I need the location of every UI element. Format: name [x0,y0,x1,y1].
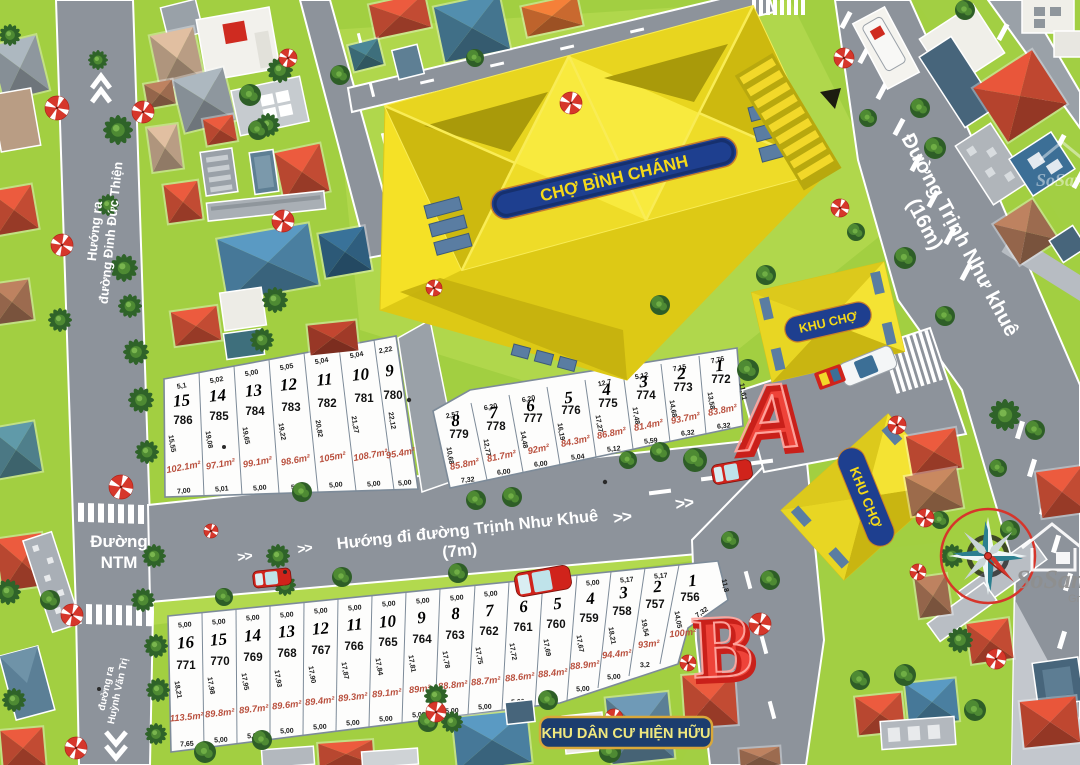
svg-text:773: 773 [673,382,692,394]
svg-text:757: 757 [645,599,664,611]
svg-text:770: 770 [210,656,229,668]
svg-text:5,00: 5,00 [246,614,260,622]
svg-text:5,00: 5,00 [253,484,267,492]
svg-text:Đường: Đường [90,532,147,551]
svg-text:5,00: 5,00 [313,724,327,732]
svg-text:5,00: 5,00 [346,720,360,728]
svg-text:768: 768 [277,648,297,660]
svg-text:KHU DÂN CƯ HIỆN HỮU: KHU DÂN CƯ HIỆN HỮU [541,724,710,742]
svg-text:5,00: 5,00 [178,621,192,629]
svg-text:7,32: 7,32 [461,476,475,484]
svg-text:5,00: 5,00 [478,704,492,712]
svg-text:776: 776 [561,405,580,417]
svg-text:5,01: 5,01 [215,485,229,493]
svg-text:13: 13 [277,621,296,641]
svg-text:762: 762 [479,626,498,638]
svg-text:NTM: NTM [101,553,138,572]
svg-text:5,12: 5,12 [607,445,621,453]
svg-text:SoSanh: SoSanh [1036,170,1080,190]
svg-text:5,00: 5,00 [379,716,393,724]
svg-text:5,00: 5,00 [212,618,226,626]
svg-text:778: 778 [486,421,506,433]
svg-text:5,00: 5,00 [280,611,294,619]
svg-text:14: 14 [208,385,227,405]
svg-text:6,32: 6,32 [717,422,731,430]
svg-text:7,65: 7,65 [180,741,194,749]
svg-text:5,00: 5,00 [586,579,600,587]
svg-text:774: 774 [636,390,656,402]
svg-text:13: 13 [244,380,263,400]
svg-text:782: 782 [317,398,336,410]
svg-text:10: 10 [378,611,397,631]
svg-text:781: 781 [354,393,374,405]
svg-text:763: 763 [445,630,464,642]
svg-text:3,2: 3,2 [640,662,650,669]
svg-text:12: 12 [311,618,330,638]
svg-text:15: 15 [172,390,191,410]
svg-text:766: 766 [344,641,363,653]
svg-text:5,00: 5,00 [607,674,621,682]
svg-text:(7m): (7m) [441,540,478,562]
svg-text:767: 767 [311,645,330,657]
svg-text:5,00: 5,00 [314,607,328,615]
svg-text:A: A [728,364,805,472]
svg-text:6,00: 6,00 [534,460,548,468]
svg-text:Gr: Gr [1068,593,1080,605]
svg-text:4: 4 [600,380,611,400]
svg-text:775: 775 [598,398,618,410]
svg-text:5,00: 5,00 [280,728,294,736]
svg-text:1: 1 [714,356,724,376]
svg-text:7,00: 7,00 [177,487,191,495]
svg-text:5,00: 5,00 [484,590,498,598]
svg-text:4: 4 [584,589,595,609]
svg-text:1: 1 [687,571,697,591]
svg-text:784: 784 [245,406,265,418]
svg-text:780: 780 [383,390,402,402]
svg-text:783: 783 [281,402,300,414]
svg-text:5,00: 5,00 [348,604,362,612]
svg-text:B: B [690,596,755,698]
svg-text:760: 760 [546,619,565,631]
svg-text:12: 12 [279,374,298,394]
svg-text:16: 16 [176,632,195,652]
svg-text:5,00: 5,00 [329,481,343,489]
svg-text:10: 10 [351,364,370,384]
svg-text:5,04: 5,04 [571,453,585,461]
svg-text:14: 14 [243,625,262,645]
svg-text:15: 15 [209,629,228,649]
svg-text:765: 765 [378,637,398,649]
svg-text:6,32: 6,32 [681,429,695,437]
svg-text:5,00: 5,00 [214,737,228,745]
svg-text:5,00: 5,00 [576,686,590,694]
svg-text:11: 11 [346,614,364,634]
svg-text:5,00: 5,00 [398,479,412,487]
svg-text:SoSanh: SoSanh [1016,565,1080,594]
svg-text:771: 771 [176,660,196,672]
svg-text:6,00: 6,00 [497,468,511,476]
svg-text:5,00: 5,00 [382,600,396,608]
svg-text:761: 761 [513,622,533,634]
svg-text:764: 764 [412,634,432,646]
svg-text:772: 772 [711,374,730,386]
svg-text:779: 779 [449,429,468,441]
svg-text:786: 786 [173,415,192,427]
svg-text:785: 785 [209,411,229,423]
svg-text:758: 758 [612,606,632,618]
svg-text:5,00: 5,00 [416,597,430,605]
svg-text:769: 769 [243,652,262,664]
svg-text:5,00: 5,00 [450,594,464,602]
svg-text:759: 759 [579,613,598,625]
svg-text:777: 777 [523,413,542,425]
svg-text:11: 11 [316,369,334,389]
svg-text:5,00: 5,00 [367,480,381,488]
